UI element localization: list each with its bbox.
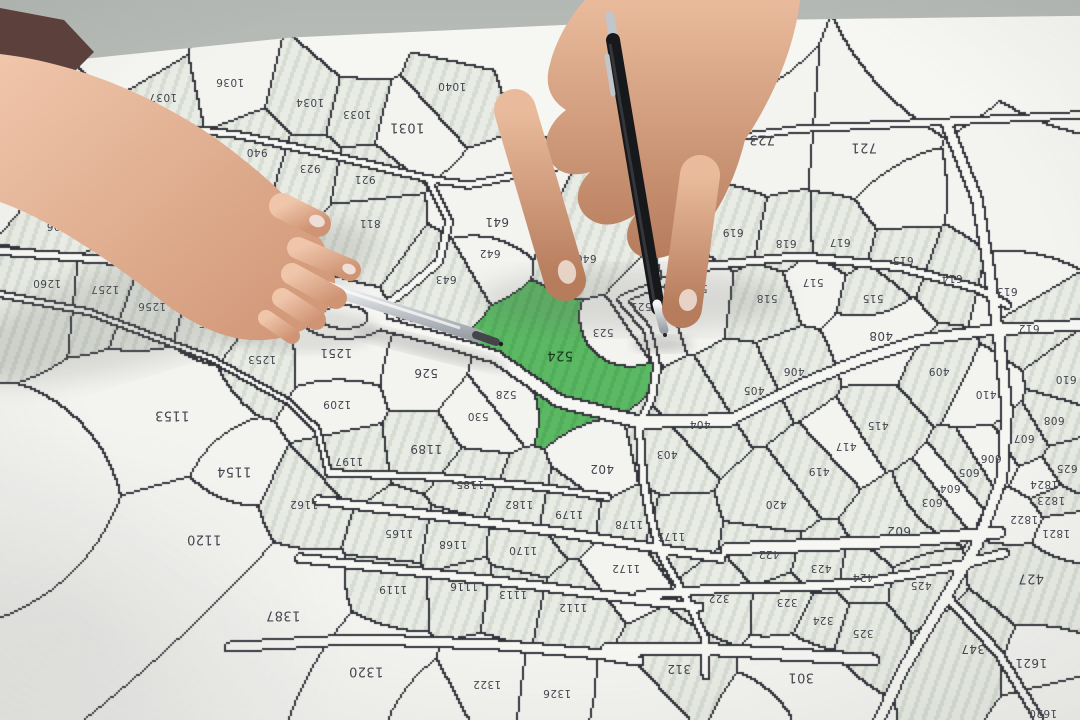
pen-tip <box>663 333 667 337</box>
right-hand-back <box>546 0 800 259</box>
hands-overlay <box>0 0 1080 720</box>
photo-scene: 1037103610341033103110409409239218118067… <box>0 0 1080 720</box>
right-index-finger <box>682 175 700 308</box>
pen-ballpoint-tip <box>499 342 503 346</box>
